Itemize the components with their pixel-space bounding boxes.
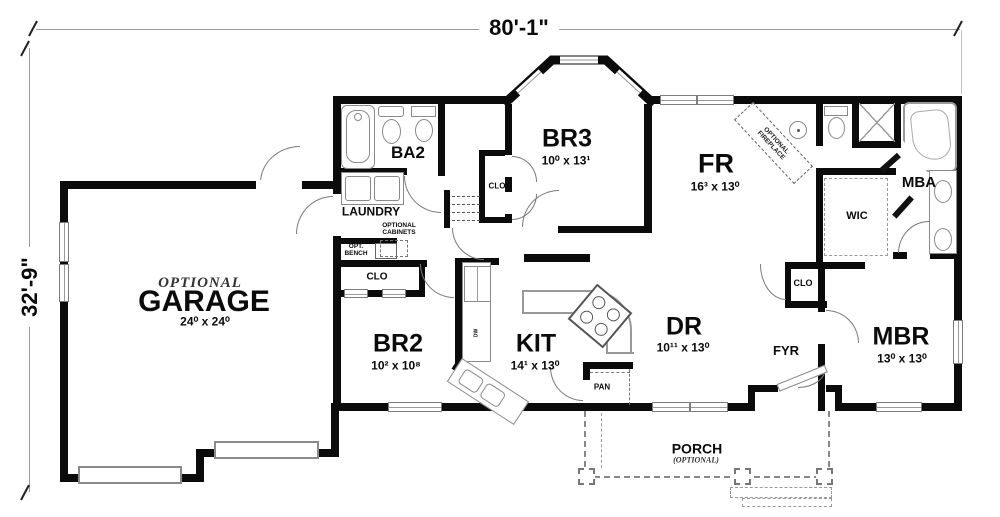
drain-icon bbox=[354, 113, 362, 121]
ba2-label: BA2 bbox=[391, 144, 425, 162]
door-swing bbox=[898, 221, 929, 253]
door-swing bbox=[826, 310, 859, 343]
br2-label: BR2 bbox=[373, 331, 423, 358]
porch-column bbox=[734, 468, 751, 485]
wall bbox=[816, 168, 823, 264]
stair-tread bbox=[452, 220, 480, 221]
window bbox=[953, 320, 963, 364]
stair-tread bbox=[452, 196, 480, 197]
dr-size: 10¹¹ x 13⁰ bbox=[657, 342, 710, 355]
wall bbox=[331, 403, 339, 457]
door-swing bbox=[260, 146, 300, 183]
door-opening bbox=[505, 192, 512, 214]
washer-icon bbox=[345, 176, 371, 201]
pan-label: PAN bbox=[594, 384, 610, 393]
toilet-tank-icon bbox=[411, 106, 436, 117]
dryer-icon bbox=[374, 176, 400, 201]
porch-outline bbox=[601, 413, 602, 468]
wall bbox=[583, 362, 633, 369]
burner-icon bbox=[577, 308, 595, 326]
burner-icon bbox=[604, 306, 622, 324]
door-opening bbox=[256, 180, 302, 190]
wall bbox=[558, 226, 648, 233]
door-swing bbox=[296, 196, 333, 234]
laundry-label: LAUNDRY bbox=[342, 206, 400, 219]
window bbox=[660, 95, 697, 105]
dw-label: DW bbox=[474, 329, 479, 337]
porch-outline bbox=[584, 476, 830, 478]
wall bbox=[785, 262, 865, 269]
window bbox=[876, 402, 922, 412]
dr-label: DR bbox=[666, 314, 702, 341]
garage-door bbox=[78, 466, 182, 484]
wall bbox=[893, 252, 907, 259]
window bbox=[697, 95, 734, 105]
mbr-size: 13⁰ x 13⁰ bbox=[877, 353, 927, 366]
vanity-sink-icon bbox=[934, 228, 952, 251]
fr-label: FR bbox=[698, 149, 734, 178]
bay-window bbox=[494, 50, 664, 110]
wall bbox=[748, 385, 778, 392]
wall bbox=[333, 96, 511, 104]
wall bbox=[479, 217, 512, 223]
br3-label: BR3 bbox=[542, 126, 592, 153]
optional-fireplace: OPTIONAL FIREPLACE bbox=[734, 102, 813, 184]
garage-size: 24⁰ x 24⁰ bbox=[180, 316, 230, 329]
wic-label: WIC bbox=[846, 211, 867, 223]
opt-bench-label: OPT. BENCH bbox=[344, 243, 367, 257]
island-cap bbox=[606, 352, 634, 354]
extension-line bbox=[961, 30, 962, 94]
wall bbox=[852, 141, 901, 148]
door-swing bbox=[404, 176, 441, 213]
toilet-tank-icon bbox=[824, 106, 848, 116]
coat-closet-label: CLO bbox=[794, 279, 813, 289]
garage-label: GARAGE bbox=[138, 286, 270, 318]
door-swing bbox=[760, 264, 786, 300]
kitchen-sink-icon bbox=[479, 382, 507, 408]
br2-closet-label: CLO bbox=[366, 273, 387, 284]
br3-size: 10⁰ x 13¹ bbox=[542, 155, 591, 168]
dimension-tick bbox=[20, 485, 30, 501]
fr-size: 16³ x 13⁰ bbox=[691, 181, 740, 194]
optional-fireplace-label: OPTIONAL FIREPLACE bbox=[756, 125, 791, 162]
sink-counter-icon bbox=[378, 106, 404, 117]
porch-column bbox=[816, 468, 833, 485]
window bbox=[652, 402, 690, 412]
optional-cabinets-outline bbox=[380, 240, 408, 257]
door-swing bbox=[452, 228, 484, 260]
burner-icon bbox=[592, 320, 610, 338]
porch-steps bbox=[742, 498, 832, 507]
island-cap bbox=[522, 290, 524, 312]
br3-closet-label: CLO bbox=[489, 183, 506, 192]
porch-column bbox=[578, 468, 595, 485]
fireplace-flue-dot bbox=[797, 129, 800, 132]
toilet-icon bbox=[828, 117, 845, 139]
mba-label: MBA bbox=[902, 175, 936, 191]
door-opening bbox=[505, 155, 512, 177]
width-dimension-label: 80'-1" bbox=[479, 16, 559, 40]
floor-plan: 80'-1" 32'-9" bbox=[0, 0, 1000, 517]
kitchen-sink-icon bbox=[457, 368, 485, 394]
door-swing bbox=[512, 156, 537, 182]
wall bbox=[644, 96, 652, 233]
window bbox=[388, 402, 442, 412]
br2-size: 10² x 10⁸ bbox=[371, 360, 421, 373]
window bbox=[59, 222, 69, 262]
wall bbox=[818, 262, 825, 312]
sink-icon bbox=[382, 119, 401, 144]
kit-size: 14¹ x 13⁰ bbox=[511, 360, 560, 373]
door-opening bbox=[333, 194, 341, 236]
window bbox=[59, 264, 69, 302]
porch-steps bbox=[730, 487, 832, 498]
stair-tread bbox=[452, 212, 480, 213]
wall bbox=[816, 96, 823, 146]
wall bbox=[583, 362, 590, 380]
closet-door bbox=[382, 289, 406, 298]
wall bbox=[333, 96, 341, 411]
pantry-shelf bbox=[629, 369, 630, 405]
fyr-label: FYR bbox=[773, 344, 799, 358]
stairs-dn-label: DN bbox=[445, 205, 451, 214]
height-dimension-label: 32'-9" bbox=[18, 247, 42, 327]
wall bbox=[333, 260, 427, 267]
wall bbox=[438, 96, 445, 176]
window bbox=[690, 402, 728, 412]
toilet-icon bbox=[415, 119, 433, 142]
door-swing bbox=[420, 264, 454, 298]
pantry-shelf bbox=[590, 372, 630, 373]
shower-icon bbox=[859, 103, 895, 142]
optional-cabinets-label: OPTIONAL CABINETS bbox=[382, 222, 416, 236]
kit-label: KIT bbox=[516, 331, 556, 358]
porch-qualifier: (OPTIONAL) bbox=[673, 457, 719, 466]
porch-label: PORCH bbox=[672, 441, 723, 456]
vanity-sink-icon bbox=[934, 180, 952, 203]
wall bbox=[524, 254, 590, 262]
closet-door bbox=[344, 289, 368, 298]
mba-door-leaf bbox=[892, 195, 914, 218]
refrigerator-divider bbox=[477, 266, 478, 302]
burner-icon bbox=[590, 293, 608, 311]
garage-door bbox=[214, 441, 319, 459]
stair-tread bbox=[452, 204, 480, 205]
wall bbox=[835, 385, 842, 411]
mbr-label: MBR bbox=[873, 324, 930, 351]
